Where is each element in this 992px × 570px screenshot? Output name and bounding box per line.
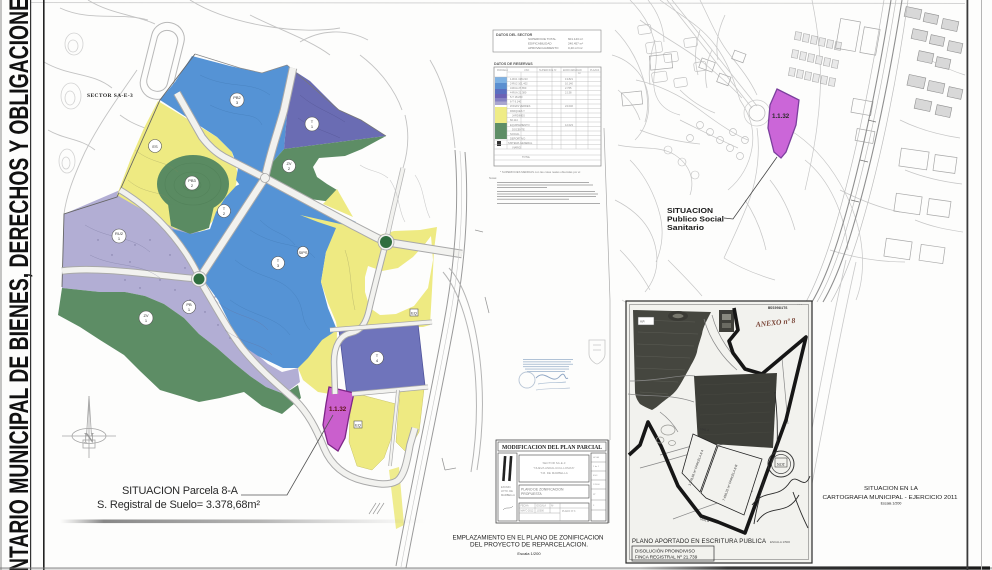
- svg-text:Escala 1/200: Escala 1/200: [517, 551, 541, 556]
- svg-text:PROPUESTA: PROPUESTA: [521, 492, 542, 496]
- svg-text:PLANO DE ZONIFICACION: PLANO DE ZONIFICACION: [521, 488, 564, 492]
- svg-text:Notas:: Notas:: [489, 176, 497, 180]
- svg-text:DOCENTE: DOCENTE: [512, 128, 525, 132]
- svg-text:B559981TS: B559981TS: [768, 307, 788, 311]
- svg-text:EQ: EQ: [355, 423, 361, 428]
- svg-text:PARCELA: PARCELA: [497, 69, 508, 72]
- svg-text:6-T 9.140: 6-T 9.140: [510, 100, 522, 104]
- svg-text:PARQUES Y: PARQUES Y: [510, 109, 525, 113]
- svg-text:V.P.: V.P.: [640, 320, 645, 324]
- svg-text:N: N: [84, 431, 95, 447]
- svg-text:TOTAL: TOTAL: [522, 155, 531, 159]
- svg-text:4-RUA 21.380: 4-RUA 21.380: [510, 91, 527, 95]
- svg-text:ESCALA 1/500: ESCALA 1/500: [770, 540, 790, 544]
- svg-text:24.046: 24.046: [565, 104, 573, 108]
- svg-text:1-RU1 138.213: 1-RU1 138.213: [510, 77, 528, 81]
- svg-text:SITUACION EN LA: SITUACION EN LA: [864, 486, 918, 492]
- svg-text:SUPERFICIE: SUPERFICIE: [539, 69, 554, 72]
- svg-text:DISOLUCIÓN PROINDIVISO: DISOLUCIÓN PROINDIVISO: [635, 548, 695, 554]
- svg-text:ESCALA: ESCALA: [537, 505, 547, 508]
- svg-text:EQUIPAMIENTO: EQUIPAMIENTO: [510, 123, 530, 127]
- svg-text:12.023: 12.023: [565, 123, 573, 127]
- svg-text:SISTEMA GENERAL: SISTEMA GENERAL: [508, 141, 533, 145]
- svg-text:SITUACION Parcela 8-A: SITUACION Parcela 8-A: [122, 485, 239, 497]
- svg-text:USO: USO: [524, 69, 529, 72]
- svg-text:m²: m²: [578, 72, 581, 75]
- svg-text:ES: ES: [152, 144, 158, 149]
- svg-text:ESC.: ESC.: [593, 475, 598, 477]
- svg-text:"NUEVA ANDALUCIA-LOMAS": "NUEVA ANDALUCIA-LOMAS": [533, 466, 574, 470]
- svg-text:Escala 1/200: Escala 1/200: [881, 502, 902, 506]
- svg-text:601.143 m²: 601.143 m²: [568, 37, 583, 41]
- svg-text:FECHA: FECHA: [521, 505, 530, 508]
- svg-text:MAYO 2012: MAYO 2012: [521, 510, 535, 513]
- svg-text:AYTO. DE: AYTO. DE: [501, 489, 513, 493]
- svg-text:1.1.32: 1.1.32: [772, 113, 790, 120]
- svg-text:MARBELLA: MARBELLA: [501, 493, 515, 497]
- svg-text:EXCMO.: EXCMO.: [501, 485, 512, 489]
- svg-text:Sanitario: Sanitario: [667, 223, 705, 232]
- svg-text:0,40 m²/m²: 0,40 m²/m²: [568, 46, 583, 50]
- svg-text:ZONAS VERDES: ZONAS VERDES: [510, 104, 531, 108]
- svg-text:13.821: 13.821: [565, 77, 573, 81]
- svg-text:1/2000: 1/2000: [537, 510, 545, 513]
- svg-text:10.140: 10.140: [565, 82, 573, 86]
- svg-text:Nº: Nº: [551, 504, 554, 508]
- svg-text:3-RUA 27.650: 3-RUA 27.650: [510, 86, 527, 90]
- svg-text:FINCA REGISTRAL Nº 21.739: FINCA REGISTRAL Nº 21.739: [635, 555, 698, 560]
- svg-text:DATOS DE RESERVAS: DATOS DE RESERVAS: [494, 62, 533, 66]
- svg-text:HOJA: HOJA: [593, 456, 599, 459]
- svg-text:JARDINES: JARDINES: [512, 114, 525, 118]
- svg-text:S. Registral de Suelo= 3.378,6: S. Registral de Suelo= 3.378,68m²: [97, 499, 260, 511]
- svg-text:* SUPERFICIES MEDIDAS con las: * SUPERFICIES MEDIDAS con las cotas real…: [500, 170, 581, 174]
- svg-text:EDIFICABILIDAD: EDIFICABILIDAD: [528, 42, 552, 46]
- svg-text:SECTOR SA-E-3: SECTOR SA-E-3: [543, 461, 566, 465]
- svg-text:NOT: NOT: [777, 462, 786, 467]
- svg-text:1 de 1: 1 de 1: [593, 466, 600, 468]
- svg-text:2-RU2 101.402: 2-RU2 101.402: [510, 82, 528, 86]
- svg-text:NTARIO MUNICIPAL DE BIENES, DE: NTARIO MUNICIPAL DE BIENES, DERECHOS Y O…: [4, 0, 34, 570]
- svg-text:MODIFICACION DEL PLAN PARCIAL: MODIFICACION DEL PLAN PARCIAL: [502, 445, 602, 451]
- svg-text:EQ: EQ: [411, 311, 417, 316]
- svg-text:SOCIAL: SOCIAL: [510, 132, 520, 136]
- svg-text:DEPORTIVO: DEPORTIVO: [510, 137, 525, 141]
- svg-text:5-T 18.260: 5-T 18.260: [510, 95, 523, 99]
- svg-text:1.1.32: 1.1.32: [329, 406, 347, 413]
- svg-text:PLAZAS: PLAZAS: [590, 69, 600, 72]
- svg-text:SIPS: SIPS: [298, 250, 307, 255]
- svg-text:60.114: 60.114: [510, 118, 518, 122]
- svg-text:VIARIO: VIARIO: [512, 146, 521, 150]
- svg-text:SECTOR SA-E-3: SECTOR SA-E-3: [87, 93, 133, 99]
- svg-text:SUPERFICIE TOTAL: SUPERFICIE TOTAL: [528, 37, 557, 41]
- svg-text:T.M. DE MARBELLA: T.M. DE MARBELLA: [540, 471, 568, 475]
- svg-text:Nº: Nº: [593, 493, 596, 496]
- svg-text:DEL PROYECTO DE REPARCELACION.: DEL PROYECTO DE REPARCELACION.: [470, 542, 588, 549]
- svg-text:2.765: 2.765: [565, 86, 572, 90]
- svg-text:PLANO Nº 3: PLANO Nº 3: [562, 509, 576, 513]
- svg-text:2.138: 2.138: [565, 91, 572, 95]
- svg-text:PLANO APORTADO EN ESCRITURA PU: PLANO APORTADO EN ESCRITURA PUBLICA: [632, 539, 766, 545]
- svg-text:---: ---: [797, 303, 803, 306]
- svg-text:APROVECHAMIENTO: APROVECHAMIENTO: [528, 46, 559, 50]
- svg-text:Nº: Nº: [554, 68, 557, 72]
- svg-text:1/2000: 1/2000: [593, 484, 600, 486]
- svg-text:240.457 m²: 240.457 m²: [568, 42, 583, 46]
- svg-text:CARTOGRAFIA MUNICIPAL - EJERCI: CARTOGRAFIA MUNICIPAL - EJERCICIO 2011: [823, 495, 958, 501]
- svg-text:EMPLAZAMIENTO EN EL PLANO DE Z: EMPLAZAMIENTO EN EL PLANO DE ZONIFICACIO…: [453, 535, 604, 542]
